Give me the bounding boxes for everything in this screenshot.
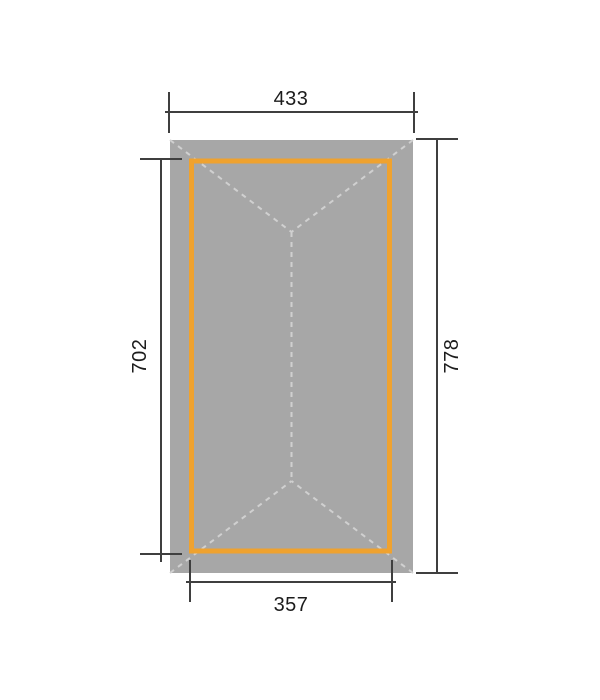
dimension-drawing: 433 357 702 778	[0, 0, 600, 700]
dim-bottom-label: 357	[274, 594, 309, 616]
dim-right-label: 778	[441, 339, 463, 374]
dim-left-label: 702	[129, 339, 151, 374]
dim-top-label: 433	[274, 88, 309, 110]
diagram-canvas: 433 357 702 778	[0, 0, 600, 700]
